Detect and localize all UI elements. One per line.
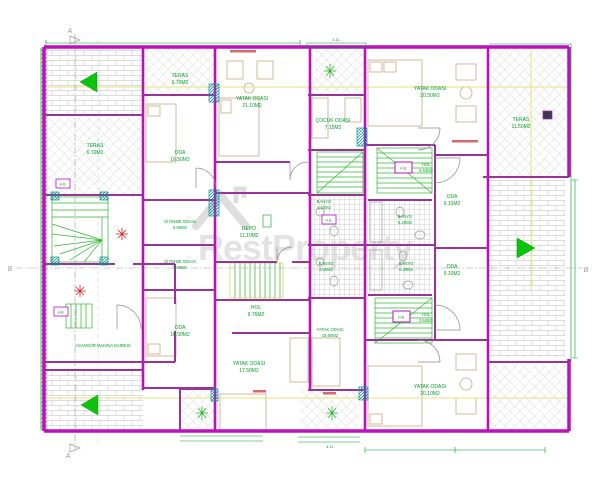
pillow [384, 62, 396, 72]
window-column [51, 257, 59, 265]
window-column [100, 257, 108, 265]
window-column [209, 84, 219, 102]
svg-text:B: B [8, 266, 13, 273]
window-column [100, 192, 108, 200]
svg-text:ÇOCUK ODASI: ÇOCUK ODASI [315, 118, 350, 124]
svg-text:HOL: HOL [422, 162, 431, 167]
round-table [460, 378, 472, 390]
bed [220, 394, 266, 430]
round-table [244, 83, 254, 93]
svg-text:ASANSÖR MAKİNA DAİRESİ: ASANSÖR MAKİNA DAİRESİ [75, 343, 130, 348]
svg-text:DEPO: DEPO [242, 226, 256, 232]
armchair [227, 61, 243, 79]
dim-text-bottom: 4.11 [326, 444, 334, 449]
svg-text:9.10M2: 9.10M2 [444, 271, 461, 277]
svg-text:4.60M2: 4.60M2 [319, 267, 334, 272]
hb-box: H.B. [322, 215, 336, 224]
svg-text:H.B.: H.B. [58, 311, 65, 315]
svg-text:6.70M2: 6.70M2 [172, 80, 189, 86]
door [435, 158, 460, 183]
window-column [51, 192, 59, 200]
svg-text:16.50M2: 16.50M2 [170, 332, 190, 338]
svg-text:15.60M2: 15.60M2 [322, 333, 339, 338]
room-label: YATAK ODASI15.60M2 [317, 327, 344, 338]
svg-text:11.50M2: 11.50M2 [511, 124, 530, 130]
svg-text:YATAK ODASI: YATAK ODASI [414, 86, 446, 92]
door [290, 162, 308, 180]
tile-floor [309, 247, 363, 297]
door [418, 128, 440, 150]
stair-machine-room [66, 304, 92, 328]
svg-text:GİYİNME ODASI: GİYİNME ODASI [164, 219, 196, 224]
svg-text:BANYO: BANYO [399, 261, 414, 266]
bed [146, 104, 176, 162]
section-marker-b-left: B [8, 266, 13, 273]
svg-text:6.29M2: 6.29M2 [398, 220, 413, 225]
hb-box: H.B. [56, 179, 70, 188]
svg-text:6.75M2: 6.75M2 [248, 312, 265, 318]
watermark-house-chimney [236, 189, 244, 203]
survey-mark-icon [74, 285, 86, 297]
svg-text:5.90M2: 5.90M2 [173, 225, 188, 230]
round-table [460, 87, 472, 99]
svg-text:11.10M2: 11.10M2 [239, 233, 258, 239]
survey-mark-icon [116, 228, 128, 240]
svg-text:ODA: ODA [175, 325, 187, 331]
svg-text:TERAS: TERAS [87, 143, 104, 149]
svg-text:6.70M2: 6.70M2 [87, 150, 104, 156]
room-label: ODA16.50M2 [170, 150, 190, 163]
armchair [257, 61, 273, 79]
bed [312, 338, 340, 386]
room-label: YATAK ODASI20.10M2 [414, 384, 446, 397]
svg-text:YATAK ODASI: YATAK ODASI [233, 361, 265, 367]
svg-text:H.B.: H.B. [400, 167, 407, 171]
svg-text:H.B.: H.B. [398, 316, 405, 320]
room-label: ODA16.50M2 [170, 325, 190, 338]
armchair [456, 398, 476, 414]
floor-plan-canvas: RestProperty [0, 0, 600, 480]
svg-text:A: A [67, 28, 73, 35]
bed [368, 366, 422, 426]
window-tag [323, 392, 336, 395]
room-label: TERAS6.70M2 [172, 73, 189, 86]
svg-text:9.10M2: 9.10M2 [444, 201, 461, 207]
svg-text:16.50M2: 16.50M2 [170, 157, 190, 163]
dim-text-top: 4.11 [332, 37, 340, 42]
section-marker-b-right: B [584, 267, 589, 274]
section-marker-a-bottom: A [65, 444, 80, 460]
svg-text:YATAK ODASI: YATAK ODASI [236, 96, 268, 102]
room-label: YATAK ODASI21.10M2 [236, 96, 268, 109]
svg-text:TERAS: TERAS [172, 73, 189, 79]
balcony-diamond-bottom-1 [181, 391, 214, 431]
window-tag [230, 50, 256, 53]
pillow [370, 62, 382, 72]
svg-text:7.15M2: 7.15M2 [325, 125, 342, 131]
section-marker-a-top: A [67, 28, 80, 44]
door [117, 305, 141, 329]
window-column [359, 387, 368, 400]
svg-text:H.B.: H.B. [60, 183, 67, 187]
room-label: DEPO11.10M2 [239, 226, 258, 239]
svg-text:21.10M2: 21.10M2 [242, 103, 262, 109]
room-label: BANYO6.29M2 [398, 214, 413, 225]
svg-text:B: B [584, 267, 589, 274]
svg-text:ODA: ODA [175, 150, 187, 156]
room-label: HOL6.75M2 [248, 305, 265, 318]
room-label: TERAS11.50M2 [511, 117, 530, 130]
room-label: BANYO6.29M2 [399, 261, 414, 272]
svg-text:GİYİNME ODASI: GİYİNME ODASI [164, 259, 196, 264]
svg-text:2.64M2: 2.64M2 [419, 318, 434, 323]
roof-window-marker [543, 111, 552, 119]
svg-text:H.B.: H.B. [326, 219, 333, 223]
door [196, 168, 216, 188]
svg-text:HOL: HOL [422, 312, 431, 317]
svg-text:20.50M2: 20.50M2 [420, 93, 440, 99]
balcony-diamond-bottom-2 [300, 391, 359, 431]
terrace-diamond-bottom-right [489, 363, 568, 430]
svg-text:ODA: ODA [447, 194, 459, 200]
window-bottom-1 [180, 436, 263, 441]
svg-text:6.29M2: 6.29M2 [399, 267, 414, 272]
pillow [370, 414, 382, 424]
room-label: BANYO4.60M2 [319, 261, 334, 272]
pillow [148, 106, 160, 116]
svg-text:17.50M2: 17.50M2 [239, 368, 259, 374]
pillow [221, 100, 231, 113]
armchair [456, 106, 476, 122]
dim-line-top-left [46, 40, 300, 46]
wardrobe [290, 338, 308, 382]
svg-text:2.64M2: 2.64M2 [419, 168, 434, 173]
room-label: HOL2.64M2 [419, 162, 434, 173]
svg-text:YATAK ODASI: YATAK ODASI [414, 384, 446, 390]
svg-text:BANYO: BANYO [398, 214, 413, 219]
window-tag [452, 140, 478, 143]
room-label: ÇOCUK ODASI7.15M2 [315, 118, 350, 131]
hb-box: H.B. [54, 307, 68, 316]
floor-plan: RestProperty [0, 0, 600, 480]
svg-text:TERAS: TERAS [513, 117, 530, 123]
dim-line-right [572, 180, 578, 358]
window-column [209, 190, 219, 216]
window-bottom-2 [298, 437, 360, 442]
door [435, 305, 460, 330]
room-label: HOL2.64M2 [419, 312, 434, 323]
hb-box: H.B. [393, 311, 410, 322]
hb-box: H.B. [395, 162, 412, 173]
armchair [456, 64, 476, 80]
terrace-diamond-top-right [489, 49, 568, 176]
svg-text:YATAK ODASI: YATAK ODASI [317, 327, 344, 332]
stair-top-center [317, 152, 363, 193]
room-label: ASANSÖR MAKİNA DAİRESİ [75, 343, 130, 348]
room-label: BANYO4.60M2 [317, 199, 332, 210]
armchair [456, 354, 476, 370]
bed [368, 60, 422, 126]
svg-text:A: A [65, 453, 71, 460]
stair-winder-left [52, 197, 108, 262]
room-label: TERAS6.70M2 [87, 143, 104, 156]
window-column [211, 389, 218, 401]
svg-text:HOL: HOL [251, 305, 262, 311]
room-label: GİYİNME ODASI5.90M2 [164, 219, 196, 230]
svg-text:5.90M2: 5.90M2 [173, 265, 188, 270]
room-label: YATAK ODASI20.50M2 [414, 86, 446, 99]
room-label: ODA9.10M2 [444, 194, 461, 207]
depo-window [263, 215, 271, 227]
window-tag [253, 390, 266, 393]
room-label: YATAK ODASI17.50M2 [233, 361, 265, 374]
svg-text:ODA: ODA [447, 264, 459, 270]
bed [146, 298, 176, 356]
pillow [148, 344, 160, 354]
svg-text:BANYO: BANYO [319, 261, 334, 266]
dim-line-bottom-right [365, 447, 545, 453]
window-column [357, 128, 367, 146]
svg-text:4.60M2: 4.60M2 [317, 205, 332, 210]
room-label: ODA9.10M2 [444, 264, 461, 277]
svg-text:20.10M2: 20.10M2 [420, 391, 440, 397]
svg-text:BANYO: BANYO [317, 199, 332, 204]
